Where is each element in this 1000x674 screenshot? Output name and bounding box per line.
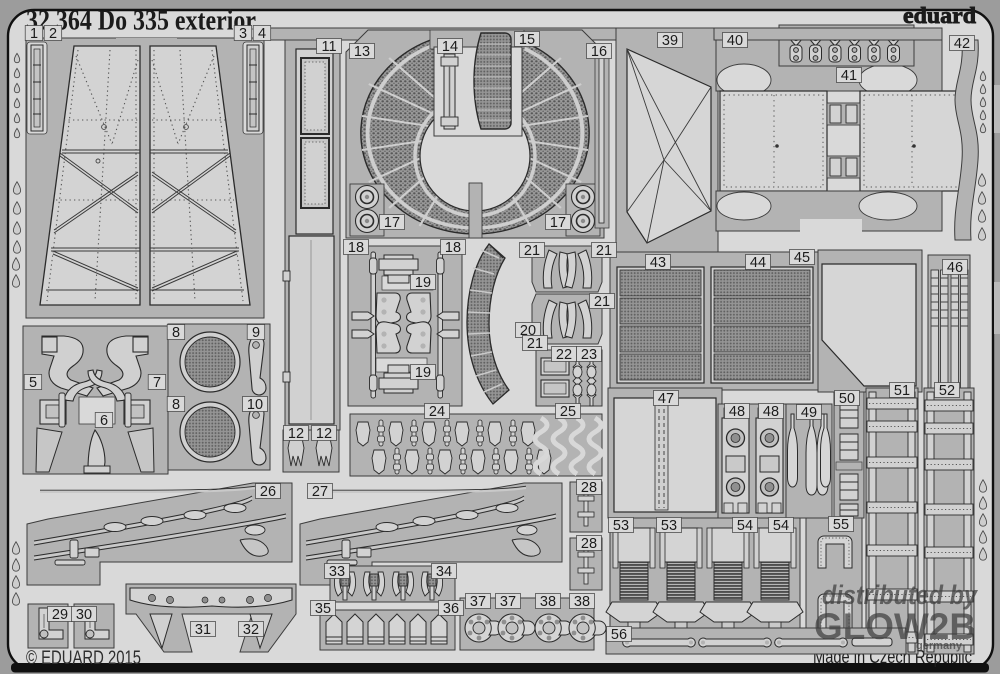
svg-text:3: 3 bbox=[239, 26, 247, 42]
svg-text:30: 30 bbox=[76, 607, 92, 623]
svg-text:31: 31 bbox=[195, 622, 211, 638]
svg-text:49: 49 bbox=[801, 405, 817, 421]
svg-text:22: 22 bbox=[556, 347, 572, 363]
svg-text:24: 24 bbox=[429, 404, 445, 420]
svg-text:55: 55 bbox=[833, 517, 849, 533]
svg-text:19: 19 bbox=[415, 275, 431, 291]
svg-text:18: 18 bbox=[348, 240, 364, 256]
svg-text:15: 15 bbox=[519, 32, 535, 48]
svg-text:46: 46 bbox=[947, 260, 963, 276]
svg-text:21: 21 bbox=[524, 243, 540, 259]
svg-text:35: 35 bbox=[315, 601, 331, 617]
svg-text:37: 37 bbox=[470, 594, 486, 610]
svg-text:38: 38 bbox=[574, 594, 590, 610]
svg-text:26: 26 bbox=[260, 484, 276, 500]
svg-text:8: 8 bbox=[172, 325, 180, 341]
svg-text:36: 36 bbox=[443, 601, 459, 617]
svg-text:41: 41 bbox=[841, 68, 857, 84]
svg-text:54: 54 bbox=[737, 518, 753, 534]
svg-text:19: 19 bbox=[415, 365, 431, 381]
svg-text:5: 5 bbox=[29, 375, 37, 391]
svg-text:53: 53 bbox=[613, 518, 629, 534]
svg-text:28: 28 bbox=[581, 480, 597, 496]
svg-text:© EDUARD 2015: © EDUARD 2015 bbox=[26, 648, 141, 669]
svg-text:27: 27 bbox=[312, 484, 328, 500]
svg-text:48: 48 bbox=[763, 404, 779, 420]
svg-text:43: 43 bbox=[650, 255, 666, 271]
svg-text:eduard: eduard bbox=[903, 3, 976, 28]
svg-text:12: 12 bbox=[288, 426, 304, 442]
svg-text:14: 14 bbox=[442, 39, 458, 55]
svg-text:7: 7 bbox=[153, 375, 161, 391]
svg-text:2: 2 bbox=[49, 26, 57, 42]
svg-text:4: 4 bbox=[258, 26, 266, 42]
svg-text:29: 29 bbox=[52, 607, 68, 623]
svg-text:23: 23 bbox=[581, 347, 597, 363]
svg-text:54: 54 bbox=[773, 518, 789, 534]
svg-text:1: 1 bbox=[30, 26, 38, 42]
svg-text:45: 45 bbox=[794, 250, 810, 266]
svg-text:11: 11 bbox=[321, 39, 336, 55]
svg-text:53: 53 bbox=[661, 518, 677, 534]
svg-text:21: 21 bbox=[527, 336, 543, 352]
svg-text:10: 10 bbox=[247, 397, 263, 413]
svg-text:28: 28 bbox=[581, 536, 597, 552]
svg-text:13: 13 bbox=[354, 44, 370, 60]
svg-text:47: 47 bbox=[658, 391, 674, 407]
svg-text:56: 56 bbox=[611, 627, 627, 643]
svg-text:42: 42 bbox=[954, 36, 970, 52]
svg-text:8: 8 bbox=[172, 397, 180, 413]
svg-text:33: 33 bbox=[329, 564, 345, 580]
svg-text:12: 12 bbox=[316, 426, 332, 442]
svg-text:6: 6 bbox=[100, 413, 108, 429]
svg-text:50: 50 bbox=[839, 391, 855, 407]
svg-text:38: 38 bbox=[540, 594, 556, 610]
svg-text:18: 18 bbox=[445, 240, 461, 256]
svg-text:37: 37 bbox=[500, 594, 516, 610]
svg-text:21: 21 bbox=[596, 243, 612, 259]
svg-text:32: 32 bbox=[243, 622, 259, 638]
svg-text:40: 40 bbox=[727, 33, 743, 49]
svg-text:17: 17 bbox=[384, 215, 400, 231]
svg-text:21: 21 bbox=[594, 294, 610, 310]
svg-text:16: 16 bbox=[591, 44, 607, 60]
svg-text:9: 9 bbox=[252, 325, 260, 341]
svg-text:34: 34 bbox=[436, 564, 452, 580]
svg-text:48: 48 bbox=[729, 404, 745, 420]
svg-text:52: 52 bbox=[939, 383, 955, 399]
svg-text:25: 25 bbox=[560, 404, 576, 420]
svg-text:17: 17 bbox=[550, 215, 566, 231]
svg-text:44: 44 bbox=[750, 255, 766, 271]
svg-text:51: 51 bbox=[894, 383, 910, 399]
svg-text:39: 39 bbox=[662, 33, 678, 49]
svg-text:germany: germany bbox=[916, 640, 963, 652]
